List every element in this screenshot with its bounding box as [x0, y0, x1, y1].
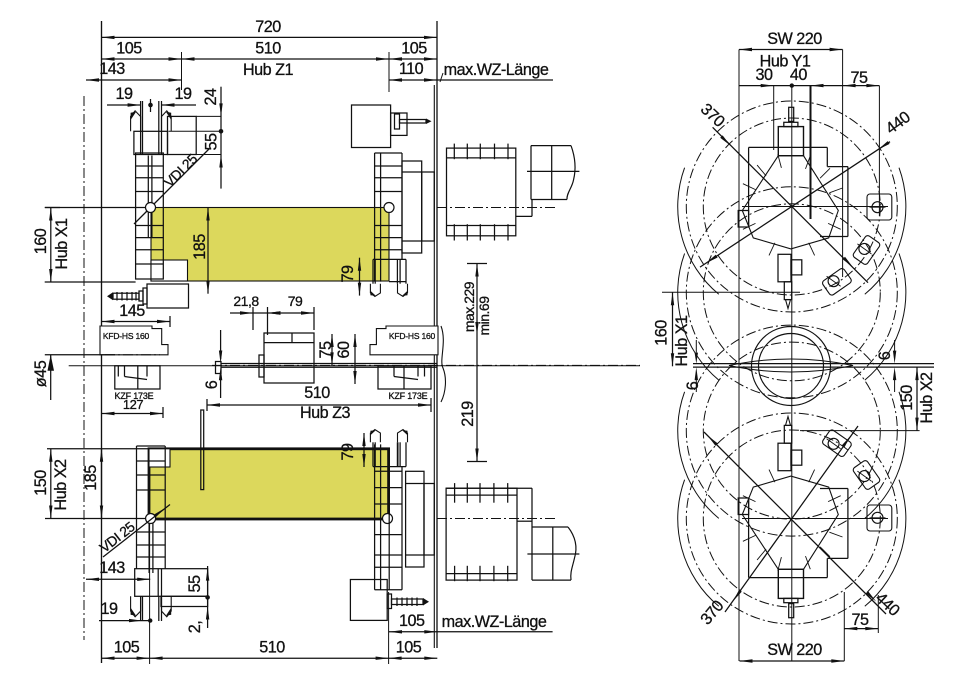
svg-text:Hub Z1: Hub Z1: [243, 61, 294, 79]
svg-text:160: 160: [32, 228, 50, 254]
svg-text:19: 19: [174, 85, 192, 103]
svg-text:55: 55: [203, 133, 221, 151]
svg-text:KFD-HS 160: KFD-HS 160: [389, 331, 436, 341]
svg-text:75: 75: [317, 341, 335, 359]
svg-text:2,: 2,: [186, 621, 204, 634]
svg-text:510: 510: [255, 40, 281, 58]
svg-text:105: 105: [114, 639, 140, 657]
svg-text:440: 440: [872, 589, 903, 620]
svg-text:Hub X1: Hub X1: [673, 315, 691, 366]
svg-text:370: 370: [697, 597, 728, 628]
svg-text:KZF 173E: KZF 173E: [389, 391, 428, 401]
svg-text:185: 185: [82, 465, 100, 491]
svg-text:Hub X1: Hub X1: [53, 218, 71, 269]
svg-text:79: 79: [288, 293, 303, 309]
svg-text:SW 220: SW 220: [767, 30, 822, 48]
svg-text:79: 79: [339, 443, 357, 461]
svg-text:143: 143: [99, 60, 125, 78]
svg-text:79: 79: [339, 265, 357, 283]
svg-text:max.229: max.229: [461, 281, 477, 332]
svg-text:105: 105: [116, 40, 142, 58]
svg-text:510: 510: [304, 384, 330, 402]
svg-text:max.WZ-Länge: max.WZ-Länge: [442, 613, 547, 631]
svg-text:KFD-HS 160: KFD-HS 160: [103, 331, 150, 341]
svg-text:105: 105: [396, 639, 422, 657]
svg-text:185: 185: [191, 234, 209, 260]
svg-text:60: 60: [335, 341, 353, 359]
svg-text:55: 55: [186, 575, 204, 593]
svg-text:105: 105: [399, 612, 425, 630]
svg-text:75: 75: [851, 611, 869, 629]
svg-text:30: 30: [755, 66, 773, 84]
svg-text:75: 75: [850, 69, 868, 87]
svg-text:SW 220: SW 220: [767, 641, 822, 659]
svg-text:24: 24: [202, 88, 220, 106]
svg-text:105: 105: [401, 40, 427, 58]
svg-text:ø45: ø45: [32, 360, 50, 387]
svg-text:40: 40: [790, 66, 808, 84]
svg-text:19: 19: [100, 600, 118, 618]
svg-text:219: 219: [459, 401, 477, 427]
svg-text:Hub X2: Hub X2: [918, 372, 936, 423]
svg-text:Hub Z3: Hub Z3: [300, 404, 351, 422]
svg-text:6: 6: [684, 381, 702, 390]
svg-text:510: 510: [259, 639, 285, 657]
svg-text:6: 6: [203, 380, 221, 389]
svg-text:VDI 25: VDI 25: [96, 518, 138, 556]
svg-text:160: 160: [652, 320, 670, 346]
svg-text:127: 127: [123, 397, 143, 412]
svg-text:max.WZ-Länge: max.WZ-Länge: [444, 61, 549, 79]
svg-text:21,8: 21,8: [233, 293, 259, 309]
svg-text:19: 19: [115, 85, 133, 103]
svg-text:145: 145: [119, 302, 145, 320]
svg-text:Hub X2: Hub X2: [52, 459, 70, 510]
svg-text:143: 143: [99, 559, 125, 577]
svg-text:110: 110: [399, 60, 424, 78]
svg-text:6: 6: [876, 351, 894, 360]
svg-text:VDI 25: VDI 25: [161, 150, 201, 190]
svg-text:150: 150: [898, 385, 916, 411]
svg-text:min.69: min.69: [476, 296, 492, 336]
svg-text:720: 720: [255, 18, 281, 36]
svg-text:440: 440: [882, 108, 914, 138]
svg-text:150: 150: [32, 470, 50, 496]
